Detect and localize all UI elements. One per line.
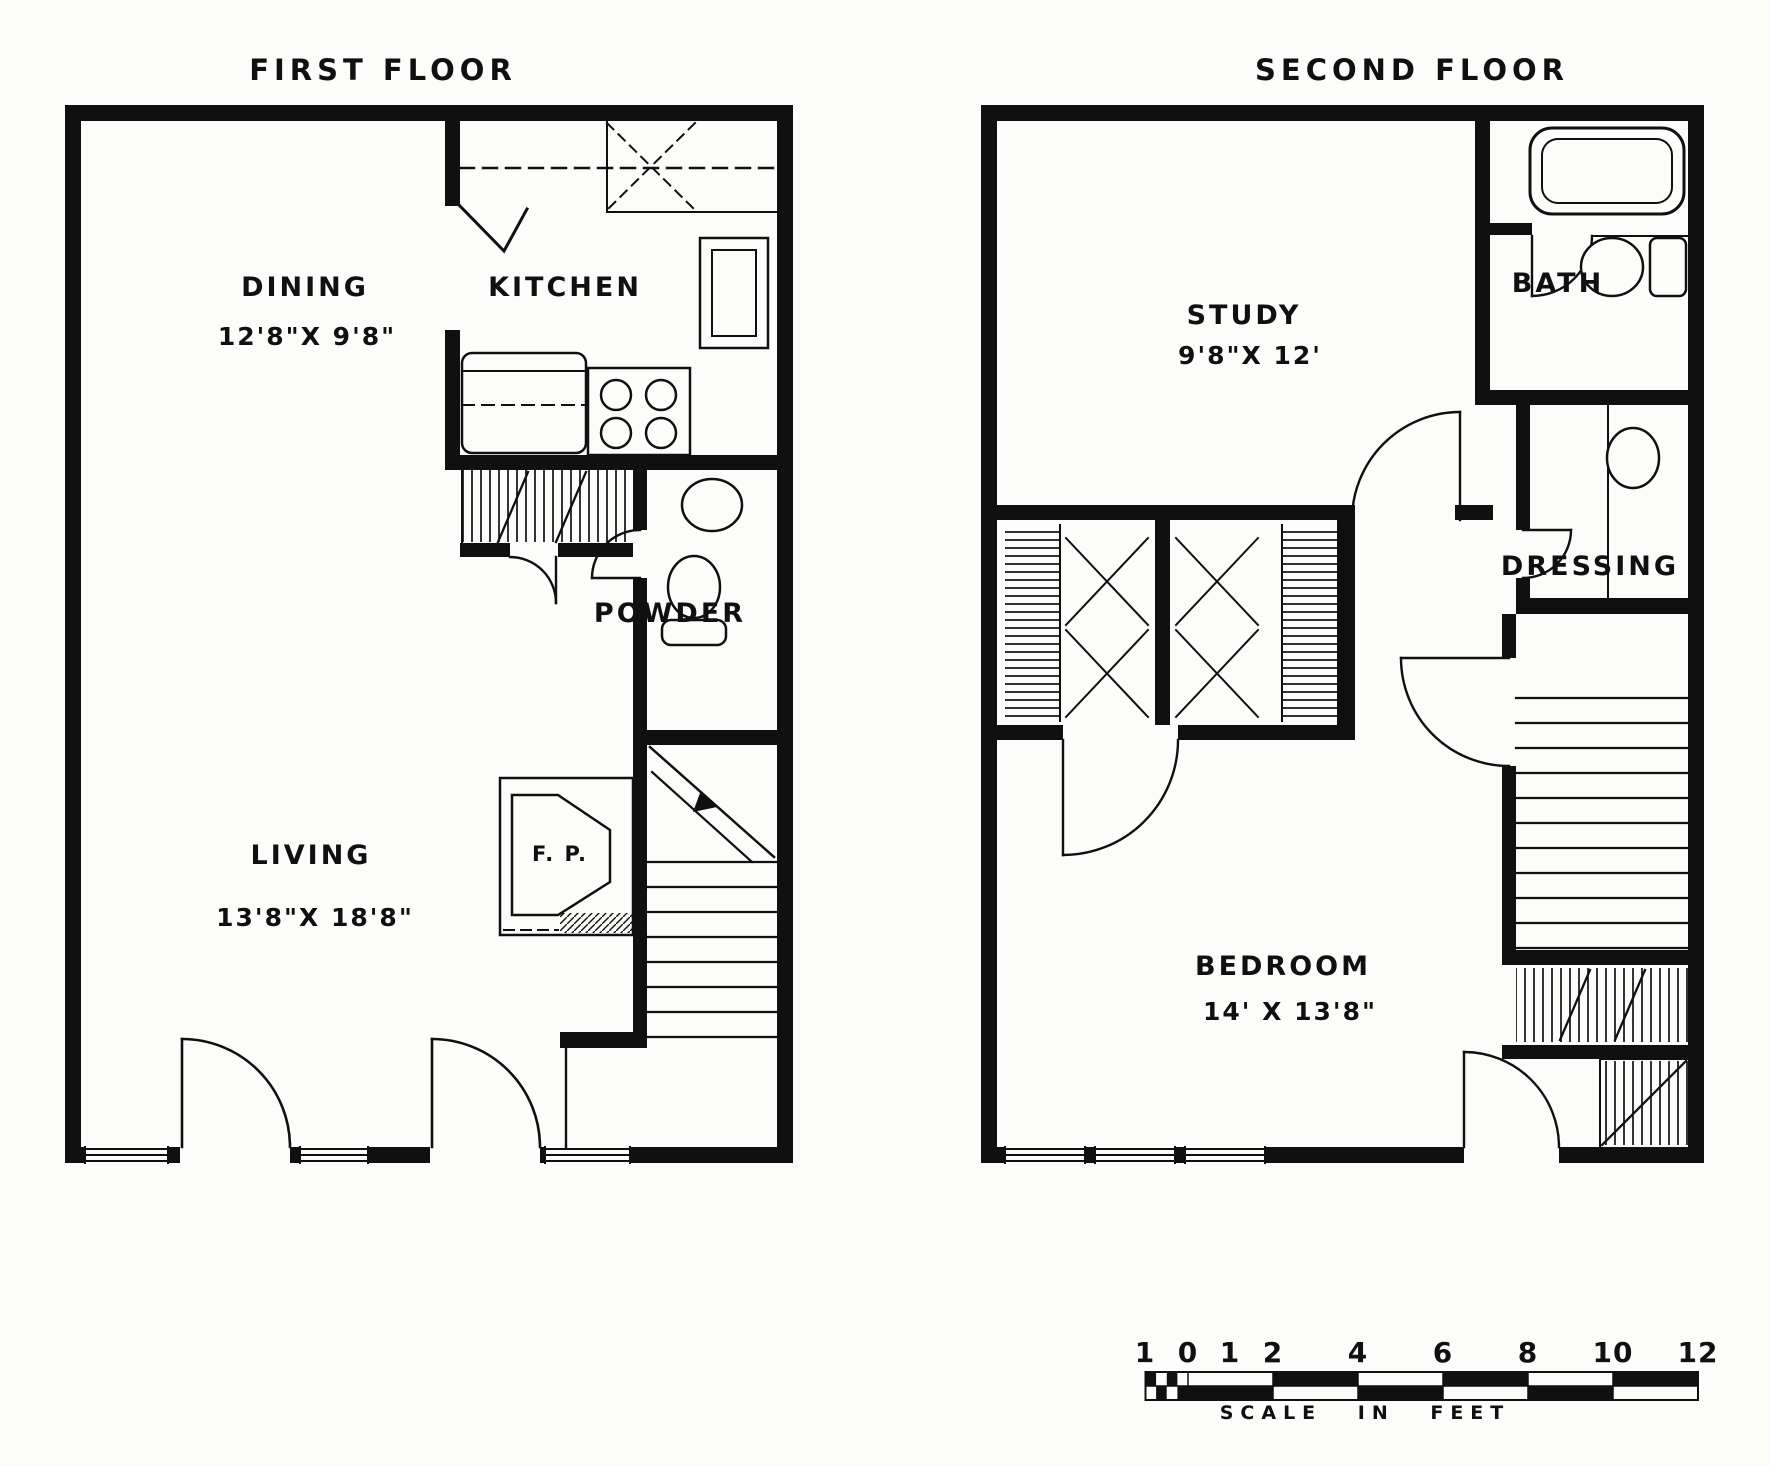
- swing-door: [460, 206, 527, 251]
- bathtub: [1530, 128, 1684, 214]
- room-dims-study: 9'8"X 12': [1178, 341, 1322, 370]
- room-label-living: LIVING: [251, 840, 372, 871]
- closet-hatch: [462, 470, 633, 543]
- first-floor-plan: [65, 105, 793, 1163]
- scale-tick: 4: [1348, 1336, 1368, 1369]
- room-dims-bedroom: 14' X 13'8": [1203, 997, 1377, 1026]
- closet-hatch: [1005, 525, 1337, 721]
- scale-bar: 1 0 1 2 4 6 8 10 12 SCALE IN FEET: [1135, 1336, 1719, 1424]
- scale-tick: 8: [1518, 1336, 1538, 1369]
- room-label-kitchen: KITCHEN: [488, 272, 642, 303]
- fireplace-label: F. P.: [532, 842, 588, 866]
- second-floor-title: SECOND FLOOR: [1255, 53, 1569, 87]
- scale-tick: 0: [1178, 1336, 1198, 1369]
- scale-tick: 12: [1678, 1336, 1719, 1369]
- scale-tick: 10: [1593, 1336, 1634, 1369]
- window: [1005, 1147, 1265, 1163]
- room-label-study: STUDY: [1187, 300, 1302, 331]
- staircase: [1516, 698, 1688, 948]
- door-arc: [1063, 740, 1178, 855]
- door-arc: [1352, 412, 1460, 520]
- scale-tick: 1: [1135, 1336, 1155, 1369]
- closet-hatch: [1516, 968, 1688, 1042]
- room-label-powder: POWDER: [594, 598, 746, 629]
- room-label-dining: DINING: [241, 272, 369, 303]
- dressing-sink: [1607, 428, 1659, 488]
- scale-caption: SCALE IN FEET: [1220, 1402, 1511, 1424]
- entry-door-opening: [430, 1147, 540, 1163]
- powder-sink: [682, 479, 742, 531]
- room-label-bedroom: BEDROOM: [1195, 951, 1371, 982]
- door-opening: [1464, 1147, 1559, 1163]
- door-arc: [1401, 658, 1509, 766]
- room-dims-dining: 12'8"X 9'8": [218, 322, 396, 351]
- stove: [588, 368, 690, 455]
- kitchen-sink-counter: [462, 353, 586, 453]
- door-arc: [182, 1039, 540, 1147]
- entry-door-opening: [180, 1147, 290, 1163]
- door-arc: [1464, 1052, 1559, 1147]
- door-arc: [510, 557, 556, 603]
- window: [85, 1147, 630, 1163]
- room-dims-living: 13'8"X 18'8": [216, 903, 414, 932]
- first-floor-title: FIRST FLOOR: [249, 53, 517, 87]
- floor-plan-drawing: 1 0 1 2 4 6 8 10 12 SCALE IN FEET FIRST …: [0, 0, 1770, 1466]
- scale-tick-labels: 1 0 1 2 4 6 8 10 12: [1135, 1336, 1719, 1369]
- scale-tick: 6: [1433, 1336, 1453, 1369]
- staircase: [647, 747, 777, 1037]
- scale-tick: 2: [1263, 1336, 1283, 1369]
- refrigerator: [700, 238, 768, 348]
- kitchen-counter: [460, 121, 777, 212]
- floor-plan-sheet: 1 0 1 2 4 6 8 10 12 SCALE IN FEET FIRST …: [0, 0, 1770, 1466]
- room-label-bath: BATH: [1512, 268, 1604, 299]
- closet-hatch: [1600, 1059, 1688, 1147]
- scale-tick: 1: [1220, 1336, 1240, 1369]
- room-label-dressing: DRESSING: [1501, 551, 1679, 582]
